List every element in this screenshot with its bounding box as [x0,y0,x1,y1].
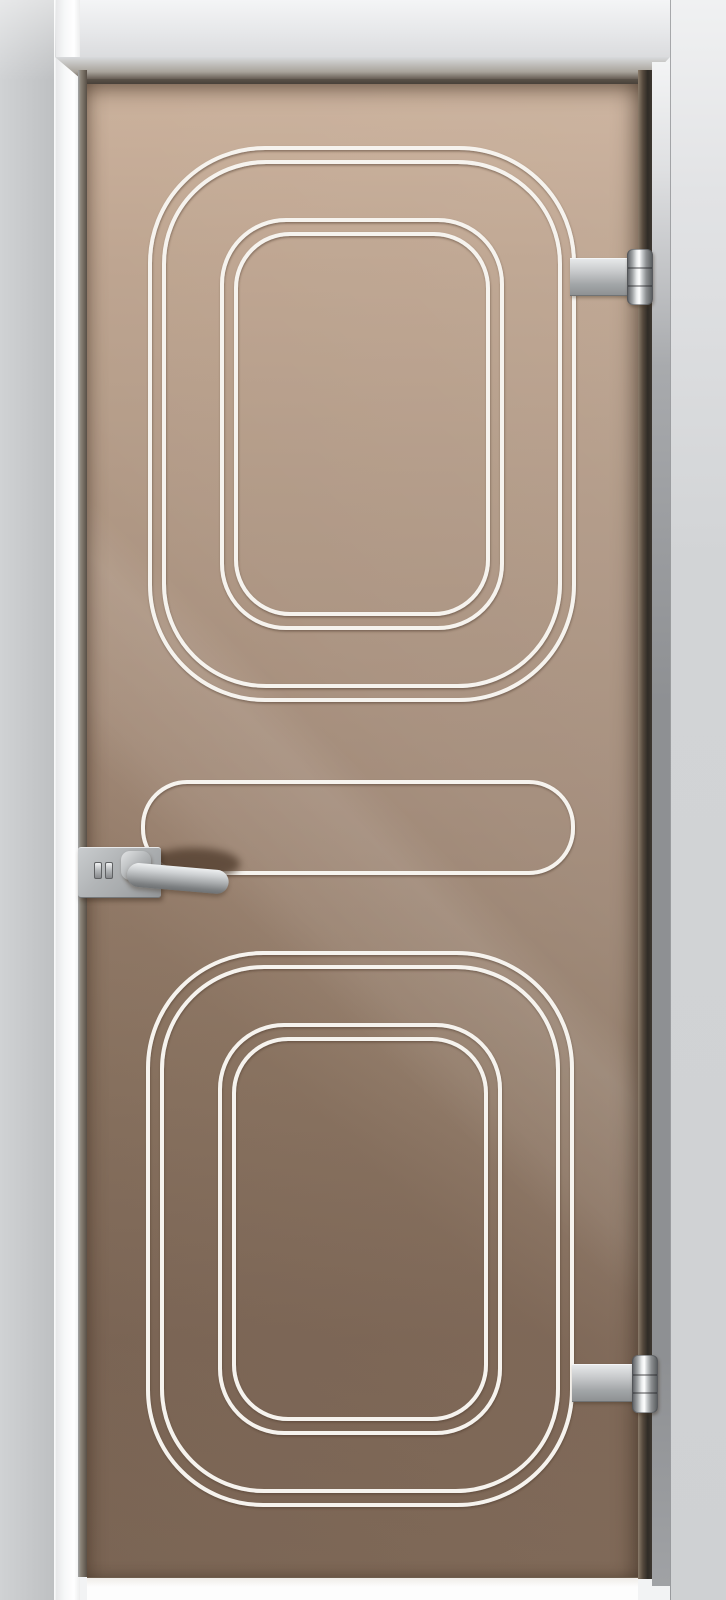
bottom-hinge-barrel [632,1355,658,1413]
frame-jamb-left [56,0,80,1600]
etched-ring-bottom-motif [148,953,572,1505]
frame-casing-left [0,0,55,1600]
top-hinge-barrel [627,249,653,305]
frame-casing-right [670,0,726,1600]
etched-ring-bottom-motif [234,1039,486,1419]
etched-ring-top-motif [222,220,502,628]
top-hinge-plate [570,258,629,296]
privacy-lock-indicator [94,861,116,880]
etched-ring-top-motif [236,234,488,614]
etched-contour-pattern [87,84,638,1577]
frame-rebate-left [78,70,87,1577]
floor [87,1578,638,1600]
frame-header [28,0,700,57]
etched-ring-bottom-motif [220,1025,500,1433]
etched-ring-top-motif [150,148,574,700]
bottom-hinge-plate [572,1364,634,1402]
door-product-photo [0,0,726,1600]
